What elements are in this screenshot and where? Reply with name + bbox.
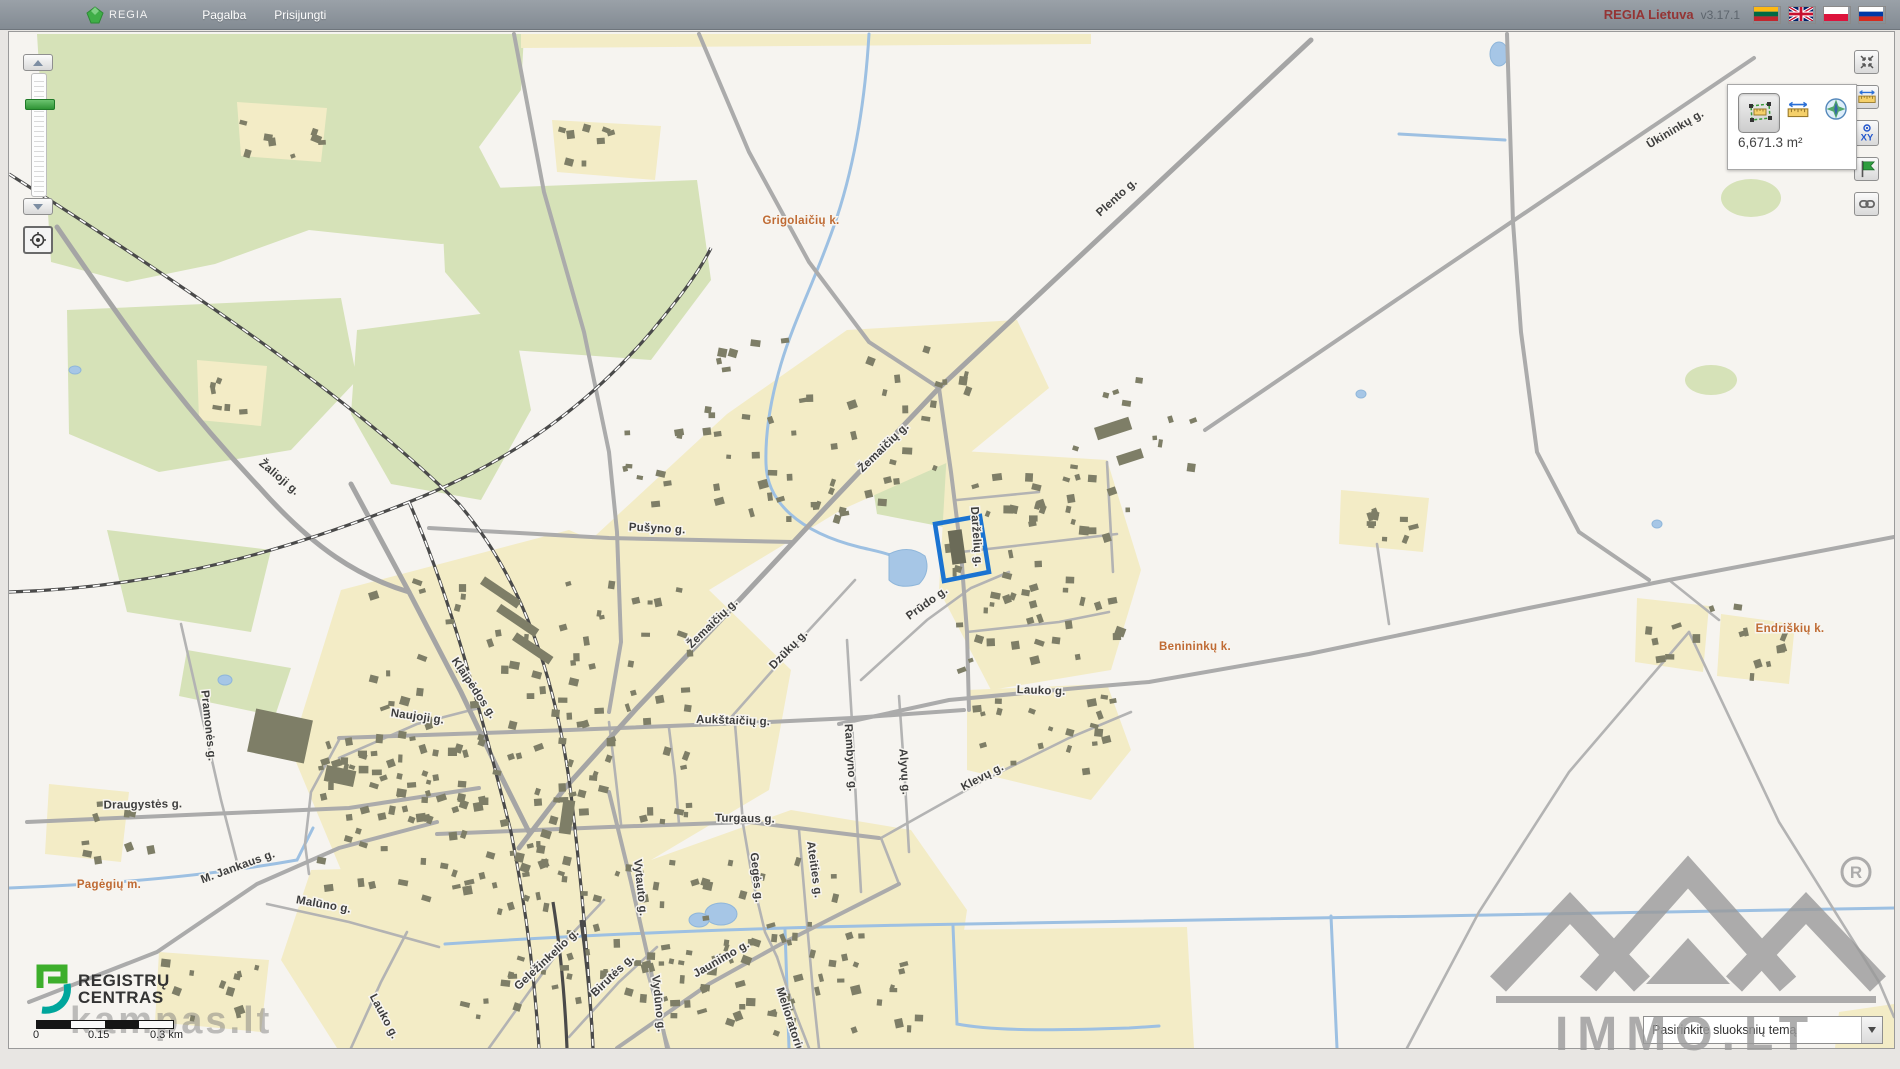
globe-compass-icon[interactable] — [1824, 97, 1848, 121]
registru-centras-mark-icon — [34, 964, 72, 1014]
menu-item-prisijungti[interactable]: Prisijungti — [274, 8, 326, 22]
target-icon — [29, 231, 47, 249]
zoom-in-button[interactable] — [23, 54, 53, 71]
xy-coordinates-icon: XY — [1858, 123, 1876, 143]
scale-bar: 0 0.15 0.3 km — [36, 1020, 226, 1043]
area-measure-icon — [1746, 101, 1773, 125]
registru-centras-logo: REGISTRŲ CENTRAS — [34, 964, 170, 1014]
dropdown-button[interactable] — [1861, 1017, 1882, 1043]
scale-mid-label: 0.15 — [88, 1029, 109, 1041]
street-label: Lauko g. — [1016, 684, 1065, 698]
main-menu: Pagalba Prisijungti — [202, 8, 326, 22]
measured-area-value: 6,671.3 m² — [1738, 135, 1803, 150]
link-icon — [1858, 196, 1876, 212]
regia-gem-icon — [86, 6, 104, 24]
street-label: Draugystės g. — [104, 798, 183, 811]
place-label: Benininkų k. — [1159, 641, 1231, 653]
arrow-up-icon — [33, 60, 43, 66]
top-navigation-bar: REGIA Pagalba Prisijungti REGIA Lietuva … — [0, 0, 1900, 30]
zoom-out-button[interactable] — [23, 198, 53, 215]
green-flag-icon — [1858, 159, 1876, 179]
zoom-slider-handle[interactable] — [25, 99, 55, 110]
place-label: Grigolaičių k. — [762, 215, 839, 227]
place-label: Pagėgių m. — [77, 879, 141, 891]
topbar-right: REGIA Lietuva v3.17.1 — [1604, 6, 1886, 24]
registry-logo-line2: CENTRAS — [78, 989, 170, 1006]
chevron-down-icon — [1868, 1027, 1876, 1033]
registry-logo-line1: REGISTRŲ — [78, 972, 170, 989]
flag-marker-button[interactable] — [1854, 157, 1879, 181]
place-label: Endriškių k. — [1756, 623, 1825, 635]
street-label: Turgaus g. — [715, 812, 775, 825]
map-image: Plento g.Ūkininkų g.Žalioji g.Pušyno g.Ž… — [9, 32, 1894, 1048]
collapse-arrows-icon — [1859, 54, 1875, 70]
flag-lt-icon[interactable] — [1753, 6, 1781, 24]
fit-extent-button[interactable] — [1854, 50, 1879, 74]
measurement-panel: 6,671.3 m² — [1727, 84, 1857, 170]
share-link-button[interactable] — [1854, 192, 1879, 216]
version-brand: REGIA Lietuva — [1604, 7, 1694, 22]
coordinates-button[interactable]: XY — [1854, 120, 1879, 146]
locate-button[interactable] — [23, 226, 53, 254]
flag-ru-icon[interactable] — [1858, 6, 1886, 24]
version-number: v3.17.1 — [1701, 8, 1740, 22]
distance-measure-icon[interactable] — [1786, 101, 1810, 119]
zoom-slider-ticks — [34, 77, 44, 193]
measure-tool-button[interactable] — [1854, 85, 1879, 109]
layer-theme-dropdown[interactable]: Pasirinkite sluoksnių temą — [1643, 1016, 1883, 1044]
ruler-icon — [1857, 89, 1877, 105]
flag-pl-icon[interactable] — [1823, 6, 1851, 24]
regia-logo[interactable]: REGIA — [86, 6, 148, 24]
scale-end-label: 0.3 km — [150, 1029, 183, 1041]
scale-bar-segments — [36, 1020, 174, 1029]
map-canvas[interactable]: Plento g.Ūkininkų g.Žalioji g.Pušyno g.Ž… — [8, 31, 1895, 1049]
svg-text:XY: XY — [1860, 133, 1873, 144]
brand-label: REGIA — [109, 9, 148, 21]
layer-theme-dropdown-value: Pasirinkite sluoksnių temą — [1644, 1017, 1861, 1043]
area-measure-button[interactable] — [1738, 93, 1780, 133]
zoom-slider-track[interactable] — [31, 73, 47, 197]
scale-start-label: 0 — [33, 1029, 39, 1041]
flag-gb-icon[interactable] — [1788, 6, 1816, 24]
arrow-down-icon — [33, 204, 43, 210]
menu-item-pagalba[interactable]: Pagalba — [202, 8, 246, 22]
